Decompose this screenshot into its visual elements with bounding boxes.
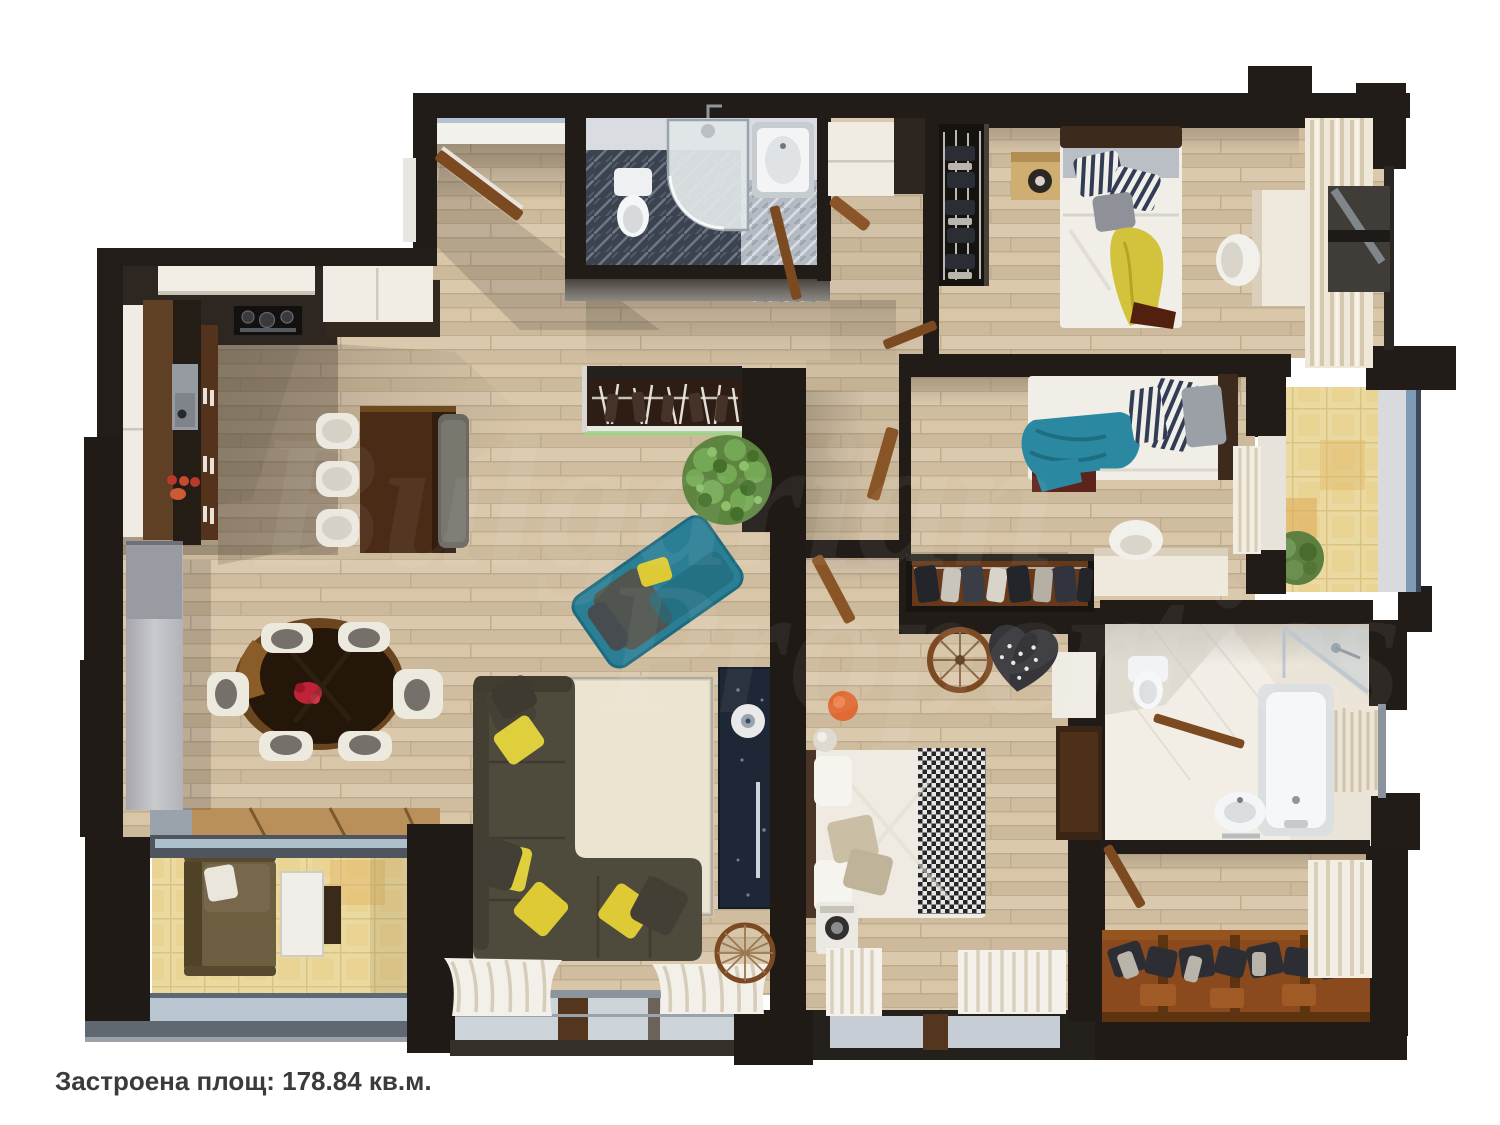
svg-text:Застроена площ: 178.84 кв.м.: Застроена площ: 178.84 кв.м.	[55, 1066, 432, 1096]
svg-text:Properties: Properties	[599, 544, 1402, 754]
